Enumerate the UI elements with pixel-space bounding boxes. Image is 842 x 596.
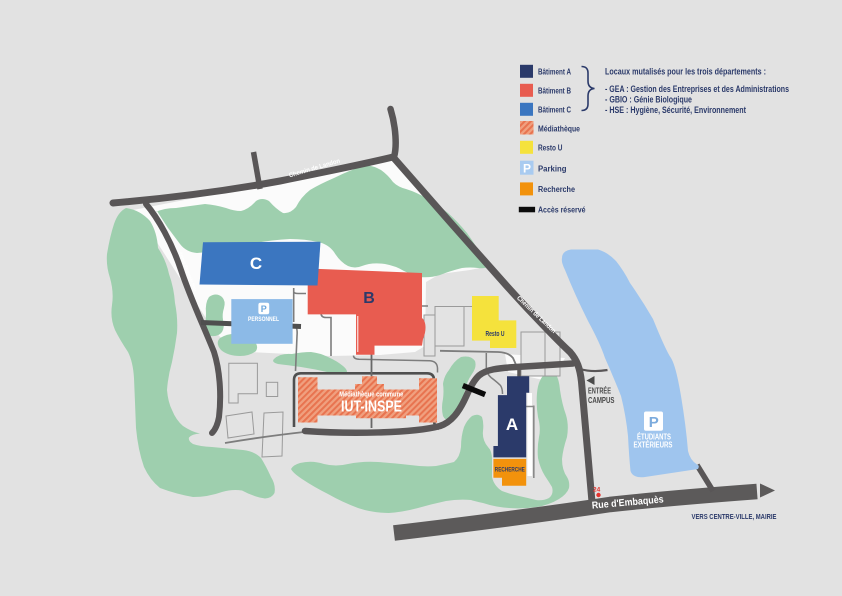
- svg-text:P: P: [649, 414, 659, 431]
- svg-text:RECHERCHE: RECHERCHE: [495, 467, 525, 474]
- svg-text:Parking: Parking: [538, 165, 567, 174]
- svg-text:P: P: [523, 162, 531, 176]
- svg-text:ENTRÉE: ENTRÉE: [588, 386, 611, 396]
- svg-text:Bâtiment A: Bâtiment A: [538, 68, 571, 77]
- svg-text:Resto U: Resto U: [486, 331, 505, 338]
- svg-text:- GEA : Gestion des Entreprise: - GEA : Gestion des Entreprises et des A…: [605, 84, 789, 95]
- svg-text:Bâtiment B: Bâtiment B: [538, 87, 571, 96]
- svg-text:B: B: [363, 290, 375, 307]
- svg-text:- HSE : Hygiène, Sécurité, Env: - HSE : Hygiène, Sécurité, Environnement: [605, 105, 747, 116]
- svg-text:CAMPUS: CAMPUS: [588, 395, 615, 405]
- svg-text:Recherche: Recherche: [538, 185, 575, 194]
- svg-text:PERSONNEL: PERSONNEL: [248, 316, 279, 323]
- svg-text:VERS CENTRE-VILLE, MAIRIE: VERS CENTRE-VILLE, MAIRIE: [692, 514, 777, 521]
- svg-text:24: 24: [593, 487, 601, 494]
- svg-text:Accès réservé: Accès réservé: [538, 206, 586, 215]
- svg-text:Resto U: Resto U: [538, 144, 563, 153]
- svg-text:- GBIO : Génie Biologique: - GBIO : Génie Biologique: [605, 95, 692, 106]
- svg-text:EXTÉRIEURS: EXTÉRIEURS: [634, 440, 673, 449]
- svg-text:A: A: [506, 415, 518, 434]
- svg-text:P: P: [261, 304, 267, 314]
- svg-text:Médiathèque commune: Médiathèque commune: [339, 392, 403, 399]
- svg-text:Bâtiment C: Bâtiment C: [538, 106, 571, 115]
- svg-text:Locaux mutalisés pour les troi: Locaux mutalisés pour les trois départem…: [605, 67, 766, 78]
- svg-text:Médiathèque: Médiathèque: [538, 125, 580, 134]
- svg-text:C: C: [250, 254, 262, 273]
- svg-text:IUT-INSPE: IUT-INSPE: [341, 399, 402, 416]
